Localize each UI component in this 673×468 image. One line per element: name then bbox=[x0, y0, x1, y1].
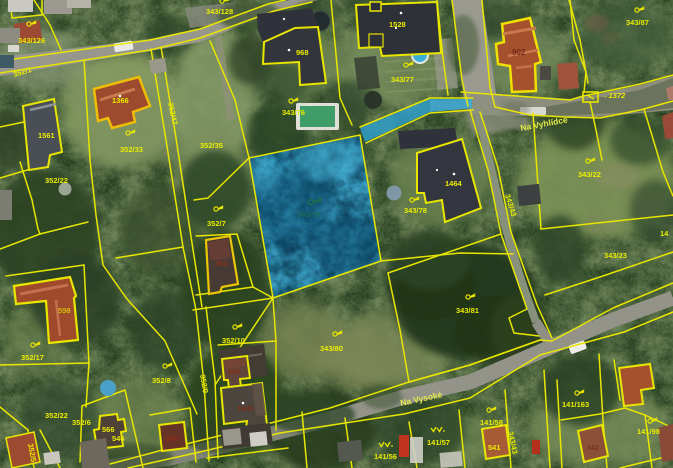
svg-text:1528: 1528 bbox=[389, 20, 406, 29]
svg-text:343/81: 343/81 bbox=[456, 306, 479, 315]
svg-text:343/23: 343/23 bbox=[604, 251, 627, 260]
svg-text:341: 341 bbox=[587, 445, 599, 452]
svg-text:352/10: 352/10 bbox=[222, 336, 245, 345]
svg-text:352/6: 352/6 bbox=[72, 418, 91, 427]
svg-text:692: 692 bbox=[228, 367, 241, 376]
svg-text:352/22: 352/22 bbox=[45, 411, 68, 420]
svg-text:141/163: 141/163 bbox=[562, 400, 589, 409]
svg-text:343/76: 343/76 bbox=[282, 108, 305, 117]
svg-text:343/87: 343/87 bbox=[626, 18, 649, 27]
svg-text:1464: 1464 bbox=[445, 179, 463, 188]
svg-text:352/35: 352/35 bbox=[200, 141, 223, 150]
svg-text:343/22: 343/22 bbox=[578, 170, 601, 179]
svg-text:343/77: 343/77 bbox=[391, 75, 414, 84]
svg-text:141/56: 141/56 bbox=[374, 452, 397, 461]
svg-text:546: 546 bbox=[112, 434, 125, 443]
svg-text:968: 968 bbox=[296, 48, 309, 57]
svg-text:352/17: 352/17 bbox=[21, 353, 44, 362]
svg-text:541: 541 bbox=[488, 443, 501, 452]
svg-text:1366: 1366 bbox=[112, 96, 129, 105]
svg-text:352/8: 352/8 bbox=[152, 376, 171, 385]
svg-text:343/128: 343/128 bbox=[206, 7, 233, 16]
svg-text:141/98: 141/98 bbox=[637, 427, 660, 436]
svg-text:141/58: 141/58 bbox=[480, 418, 503, 427]
svg-text:343/80: 343/80 bbox=[320, 344, 343, 353]
svg-text:141/57: 141/57 bbox=[427, 438, 450, 447]
svg-text:352/33: 352/33 bbox=[120, 145, 143, 154]
svg-text:1645: 1645 bbox=[237, 404, 254, 413]
svg-text:352/22: 352/22 bbox=[45, 176, 68, 185]
svg-text:343/126: 343/126 bbox=[18, 36, 45, 45]
svg-text:598: 598 bbox=[58, 306, 71, 315]
svg-text:352/7: 352/7 bbox=[207, 219, 226, 228]
svg-text:566: 566 bbox=[102, 425, 115, 434]
svg-text:→1372: →1372 bbox=[601, 91, 626, 100]
svg-text:343/79: 343/79 bbox=[297, 210, 320, 219]
svg-text:906: 906 bbox=[166, 434, 179, 443]
svg-text:263: 263 bbox=[215, 259, 228, 268]
svg-text:1561: 1561 bbox=[38, 131, 55, 140]
svg-text:902: 902 bbox=[512, 48, 526, 57]
svg-text:14: 14 bbox=[660, 229, 669, 238]
svg-text:343/78: 343/78 bbox=[404, 206, 427, 215]
